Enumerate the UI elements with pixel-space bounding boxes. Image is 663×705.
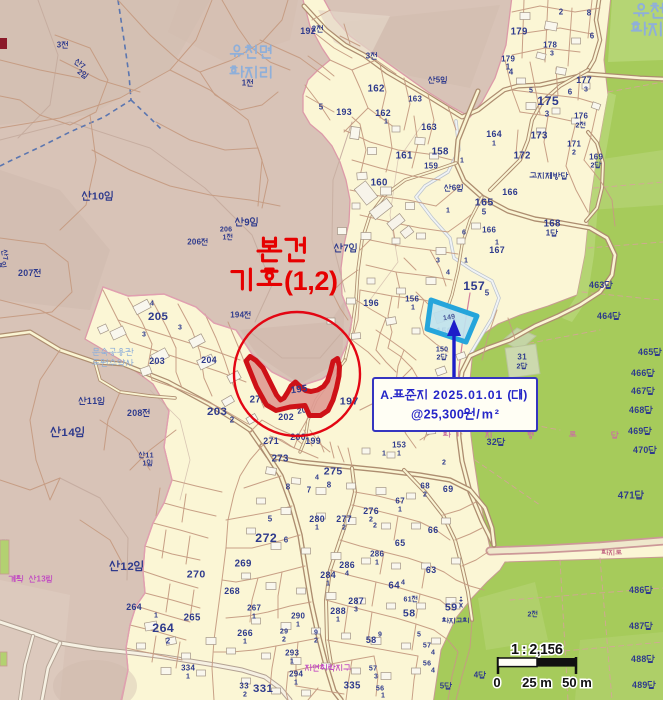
svg-text:8: 8 (587, 9, 592, 18)
svg-text:2: 2 (342, 524, 346, 531)
svg-text:50 m: 50 m (562, 675, 592, 690)
svg-text:1: 1 (326, 580, 330, 587)
svg-text:193: 193 (336, 107, 351, 117)
svg-text:158: 158 (432, 146, 449, 157)
svg-text:29: 29 (280, 628, 288, 635)
svg-text:65: 65 (395, 538, 405, 548)
svg-text:1: 1 (243, 638, 247, 645)
svg-text:2: 2 (517, 363, 521, 370)
svg-text:0: 0 (493, 675, 500, 690)
svg-text:202: 202 (278, 412, 293, 422)
svg-text:206: 206 (187, 238, 201, 247)
svg-text:11: 11 (87, 396, 97, 406)
svg-text:277: 277 (336, 514, 351, 524)
svg-text:2: 2 (591, 162, 595, 169)
svg-text:1: 1 (186, 673, 190, 680)
svg-text:273: 273 (272, 453, 289, 464)
svg-text:1: 1 (495, 239, 499, 246)
svg-text:173: 173 (531, 130, 548, 141)
svg-text:3: 3 (584, 86, 588, 93)
svg-text:5: 5 (440, 682, 445, 691)
svg-text:1: 1 (336, 616, 340, 623)
svg-text:13: 13 (37, 575, 47, 584)
svg-text:4: 4 (431, 667, 435, 674)
svg-text:1: 1 (223, 234, 227, 241)
svg-text:159: 159 (424, 162, 438, 171)
svg-text:156: 156 (405, 295, 419, 304)
svg-text:157: 157 (463, 279, 485, 293)
svg-text:471: 471 (618, 490, 635, 501)
svg-text:5: 5 (319, 103, 324, 112)
svg-text:160: 160 (371, 177, 388, 188)
svg-text:166: 166 (482, 226, 496, 235)
svg-text:): ) (523, 388, 527, 402)
svg-text:4: 4 (431, 649, 435, 656)
svg-text:57: 57 (369, 665, 377, 672)
svg-text:6: 6 (462, 229, 466, 236)
svg-text:66: 66 (428, 525, 438, 535)
svg-text:3: 3 (354, 606, 358, 613)
svg-text:207: 207 (18, 268, 33, 278)
svg-text:4: 4 (401, 579, 405, 586)
svg-text:6: 6 (590, 32, 595, 41)
svg-text:468: 468 (629, 405, 644, 415)
svg-text:A.: A. (380, 388, 393, 402)
svg-text:275: 275 (324, 466, 343, 478)
svg-text:3: 3 (550, 50, 554, 57)
svg-text:1 : 2,156: 1 : 2,156 (511, 642, 563, 658)
svg-text:269: 269 (235, 558, 252, 569)
svg-text:487: 487 (629, 621, 644, 631)
svg-text:5: 5 (436, 76, 441, 85)
svg-text:177: 177 (576, 75, 591, 85)
svg-text:467: 467 (631, 386, 646, 396)
svg-text:4: 4 (150, 300, 154, 307)
svg-text:2: 2 (572, 149, 576, 156)
svg-text:5: 5 (417, 631, 421, 638)
svg-text:293: 293 (285, 649, 299, 658)
svg-text:162: 162 (375, 108, 390, 118)
svg-text:488: 488 (631, 654, 646, 664)
svg-text:172: 172 (514, 150, 531, 161)
svg-text:8: 8 (286, 483, 291, 492)
svg-text:5: 5 (529, 87, 533, 94)
svg-text:162: 162 (368, 83, 385, 94)
svg-text:199: 199 (305, 436, 320, 446)
svg-text:1: 1 (242, 79, 247, 88)
svg-text:1: 1 (446, 207, 450, 214)
svg-text:33: 33 (239, 682, 249, 691)
svg-text:2: 2 (576, 122, 580, 129)
svg-text:205: 205 (148, 311, 169, 323)
svg-text:31: 31 (517, 353, 527, 362)
svg-text:264: 264 (126, 602, 141, 612)
svg-text:294: 294 (289, 670, 303, 679)
svg-text:2: 2 (423, 491, 427, 498)
svg-text:@25,300: @25,300 (411, 407, 464, 421)
svg-text:169: 169 (589, 153, 603, 162)
svg-text:335: 335 (344, 680, 361, 691)
svg-text:3: 3 (142, 331, 146, 338)
svg-text:3: 3 (57, 41, 62, 50)
svg-text:286: 286 (370, 550, 384, 559)
svg-text:14: 14 (61, 427, 75, 439)
svg-text:163: 163 (421, 122, 436, 132)
svg-text:287: 287 (348, 596, 363, 606)
svg-text:489: 489 (632, 680, 647, 690)
svg-text:163: 163 (408, 95, 422, 104)
svg-text:1: 1 (252, 613, 256, 620)
svg-text:4: 4 (446, 269, 450, 276)
svg-text:67: 67 (395, 497, 405, 506)
svg-text:61: 61 (404, 596, 412, 603)
svg-text:153: 153 (392, 441, 406, 450)
svg-text:265: 265 (184, 612, 201, 623)
svg-text:1: 1 (411, 304, 415, 311)
svg-text:1: 1 (460, 157, 464, 164)
svg-text:284: 284 (320, 570, 335, 580)
svg-text:63: 63 (426, 565, 436, 575)
svg-text:288: 288 (330, 606, 345, 616)
svg-text:331: 331 (253, 683, 274, 695)
svg-text:69: 69 (443, 484, 453, 494)
svg-text:/m²: /m² (476, 407, 499, 421)
svg-text:5: 5 (268, 515, 273, 524)
svg-text:1: 1 (384, 118, 388, 125)
svg-text:5: 5 (482, 208, 487, 217)
svg-text:463: 463 (589, 280, 604, 290)
svg-text:4: 4 (345, 570, 349, 577)
svg-text:59: 59 (445, 602, 457, 614)
svg-text:9: 9 (314, 629, 318, 636)
svg-text:4: 4 (474, 671, 479, 680)
svg-text:206: 206 (220, 226, 232, 233)
svg-text:208: 208 (127, 408, 142, 418)
svg-text:465: 465 (638, 347, 653, 357)
svg-text:178: 178 (543, 41, 557, 50)
svg-text:4: 4 (509, 68, 514, 77)
svg-text:464: 464 (597, 311, 612, 321)
svg-text:68: 68 (420, 482, 430, 491)
svg-text:9: 9 (244, 217, 250, 228)
svg-text:334: 334 (181, 664, 195, 673)
svg-text:1: 1 (375, 559, 379, 566)
svg-text:280: 280 (309, 514, 324, 524)
svg-text:266: 266 (237, 628, 252, 638)
svg-text:8: 8 (327, 481, 332, 490)
svg-text:5: 5 (485, 289, 490, 298)
svg-text:6: 6 (452, 184, 457, 193)
svg-text:3: 3 (178, 324, 182, 331)
svg-text:2: 2 (166, 637, 171, 646)
svg-text:9: 9 (378, 631, 382, 638)
svg-text:167: 167 (489, 245, 504, 255)
svg-text:57: 57 (423, 642, 431, 649)
svg-text:486: 486 (629, 585, 644, 595)
svg-text:64: 64 (388, 580, 400, 591)
svg-text:469: 469 (628, 426, 643, 436)
svg-text:161: 161 (396, 150, 413, 161)
svg-text:2: 2 (282, 636, 286, 643)
svg-text:1: 1 (398, 506, 402, 513)
svg-text:2025.01.01 (: 2025.01.01 ( (429, 388, 512, 402)
svg-text:56: 56 (423, 660, 431, 667)
svg-text:2: 2 (559, 8, 564, 17)
svg-text:466: 466 (631, 368, 646, 378)
svg-text:268: 268 (224, 586, 239, 596)
svg-text:286: 286 (339, 560, 354, 570)
svg-text:1: 1 (464, 257, 468, 264)
svg-text:204: 204 (201, 355, 216, 365)
svg-text:164: 164 (486, 129, 501, 139)
svg-text:290: 290 (291, 612, 305, 621)
svg-text:2: 2 (373, 522, 377, 529)
svg-text:6: 6 (284, 536, 289, 545)
svg-text:25 m: 25 m (522, 675, 552, 690)
svg-text:272: 272 (255, 531, 277, 545)
svg-text:470: 470 (633, 445, 648, 455)
svg-text:168: 168 (544, 218, 561, 229)
svg-text:271: 271 (263, 436, 278, 446)
svg-text:176: 176 (574, 112, 588, 121)
svg-text:2: 2 (314, 637, 318, 644)
svg-text:2: 2 (243, 691, 247, 698)
svg-text:276: 276 (363, 506, 378, 516)
svg-text:171: 171 (567, 140, 581, 149)
svg-text:179: 179 (511, 26, 528, 37)
svg-text:56: 56 (376, 685, 384, 692)
svg-text:1: 1 (546, 229, 551, 238)
svg-text:1: 1 (381, 692, 385, 699)
svg-text:58: 58 (366, 635, 376, 645)
svg-text:192: 192 (300, 26, 315, 36)
svg-text:203: 203 (149, 356, 164, 366)
svg-text:7: 7 (343, 243, 348, 254)
svg-text:194: 194 (230, 311, 244, 320)
svg-text:196: 196 (363, 298, 378, 308)
svg-text:2: 2 (442, 459, 446, 466)
svg-text:2: 2 (230, 416, 235, 425)
svg-text:3: 3 (436, 257, 440, 264)
svg-text:1: 1 (382, 450, 386, 457)
svg-text:3: 3 (545, 110, 550, 119)
svg-text:11: 11 (145, 452, 153, 459)
svg-text:4: 4 (315, 474, 319, 481)
svg-text:1: 1 (294, 679, 298, 686)
svg-text:203: 203 (207, 406, 227, 418)
svg-text:175: 175 (537, 94, 559, 108)
svg-text:32: 32 (487, 437, 497, 447)
svg-text:(1,2): (1,2) (284, 266, 338, 296)
svg-text:12: 12 (120, 561, 133, 573)
svg-text:3: 3 (374, 673, 378, 680)
svg-text:1: 1 (143, 460, 147, 467)
svg-text:1: 1 (154, 612, 158, 619)
svg-text:1: 1 (315, 524, 319, 531)
svg-text:267: 267 (247, 604, 261, 613)
svg-text:270: 270 (187, 569, 206, 581)
svg-text:2: 2 (437, 354, 441, 361)
svg-text:166: 166 (502, 187, 517, 197)
svg-text:1: 1 (492, 140, 496, 147)
svg-text:1: 1 (296, 621, 300, 628)
svg-text:2: 2 (528, 611, 532, 618)
svg-text:1: 1 (397, 450, 401, 457)
svg-text:1: 1 (290, 658, 294, 665)
svg-text:150: 150 (436, 346, 448, 353)
svg-text:6: 6 (568, 88, 573, 97)
svg-text:7: 7 (307, 486, 312, 495)
svg-text:10: 10 (92, 191, 104, 203)
svg-text:3: 3 (366, 52, 371, 61)
svg-text:58: 58 (403, 608, 415, 620)
svg-text:264: 264 (152, 621, 174, 635)
